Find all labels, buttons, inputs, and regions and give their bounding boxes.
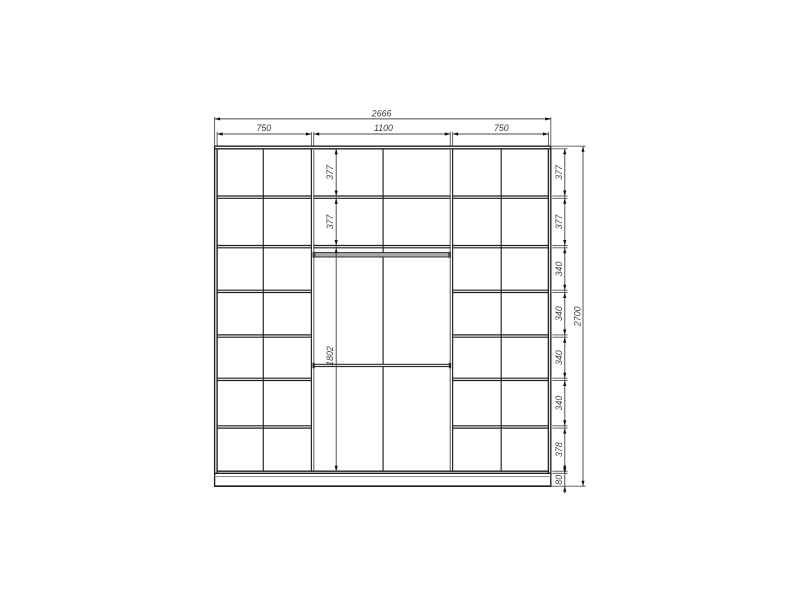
svg-text:378: 378 [554,442,564,457]
svg-text:750: 750 [256,123,271,133]
svg-text:2666: 2666 [371,109,392,119]
svg-text:377: 377 [554,213,564,229]
svg-text:340: 340 [554,396,564,411]
svg-text:377: 377 [325,213,335,229]
svg-text:340: 340 [554,350,564,365]
svg-text:340: 340 [554,262,564,277]
svg-text:750: 750 [494,123,509,133]
svg-text:80: 80 [554,475,564,485]
svg-text:1100: 1100 [374,123,393,133]
svg-text:2700: 2700 [573,306,583,327]
svg-text:1802: 1802 [325,346,335,366]
svg-text:340: 340 [554,306,564,321]
svg-text:377: 377 [554,164,564,180]
svg-text:377: 377 [325,164,335,180]
